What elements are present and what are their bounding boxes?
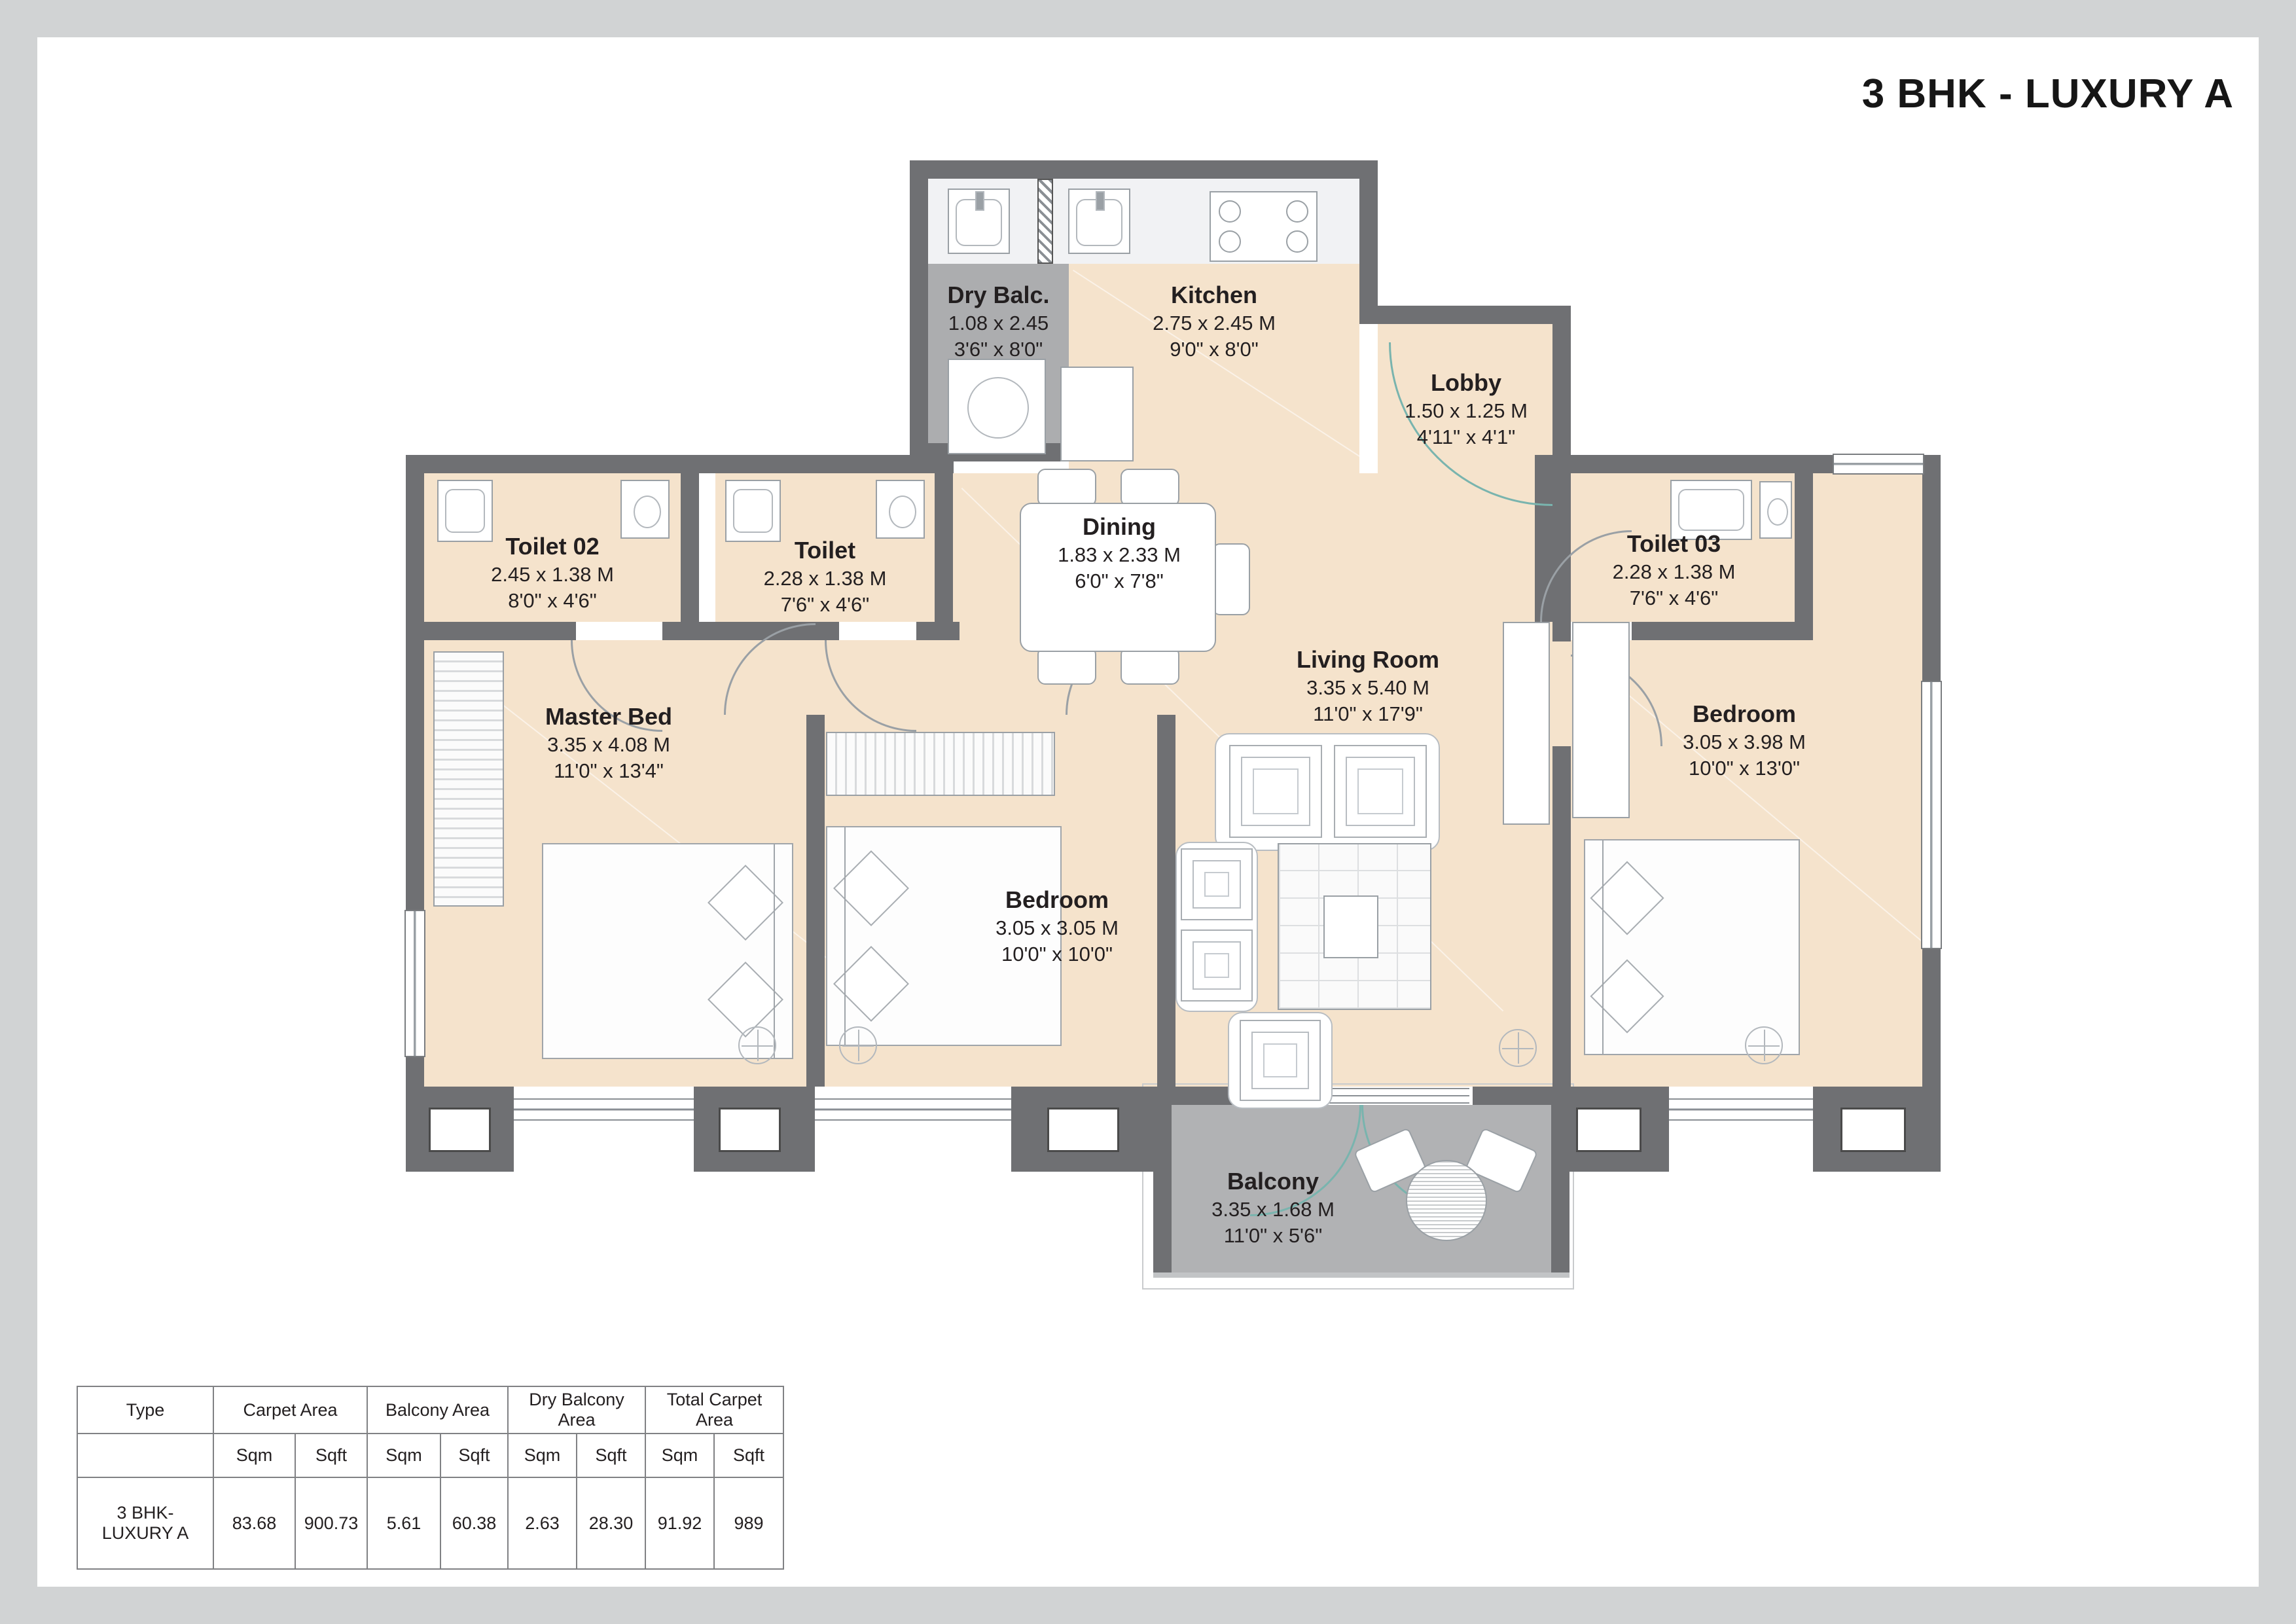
wall <box>806 715 825 1087</box>
dining-chair <box>1037 647 1096 685</box>
unit-header: Sqft <box>295 1434 367 1477</box>
window-box <box>429 1108 491 1152</box>
window <box>1833 454 1924 475</box>
wall <box>910 160 1378 179</box>
dining-chair <box>1037 469 1096 507</box>
room-label-dry-balcony: Dry Balc. 1.08 x 2.45 3'6" x 8'0" <box>922 280 1075 362</box>
room-label-lobby: Lobby 1.50 x 1.25 M 4'11" x 4'1" <box>1368 368 1564 450</box>
dining-chair <box>1121 469 1179 507</box>
window-box <box>1840 1108 1906 1152</box>
table-row: 3 BHK-LUXURY A 83.68 900.73 5.61 60.38 2… <box>77 1477 783 1569</box>
room-label-toilet02: Toilet 02 2.45 x 1.38 M 8'0" x 4'6" <box>424 532 681 613</box>
cell-balcony-sqm: 5.61 <box>367 1477 440 1569</box>
sofa-cushion <box>1229 745 1322 838</box>
cell-balcony-sqft: 60.38 <box>440 1477 508 1569</box>
wall <box>935 473 953 622</box>
frame-bottom <box>0 1587 2296 1624</box>
wall <box>916 622 960 640</box>
unit-header: Sqm <box>213 1434 295 1477</box>
frame-top <box>0 0 2296 37</box>
cell-total-sqft: 989 <box>714 1477 783 1569</box>
window-box <box>1047 1108 1119 1152</box>
plan-title: 3 BHK - LUXURY A <box>1862 71 2234 117</box>
unit-header: Sqft <box>577 1434 645 1477</box>
wc-icon <box>876 480 925 539</box>
sofa-cushion <box>1334 745 1427 838</box>
cell-carpet-sqm: 83.68 <box>213 1477 295 1569</box>
window-glazing <box>815 1098 1011 1121</box>
col-header-total-carpet-area: Total Carpet Area <box>645 1386 783 1434</box>
dining-chair <box>1121 647 1179 685</box>
cell-total-sqm: 91.92 <box>645 1477 714 1569</box>
wall <box>424 622 576 640</box>
wall <box>1632 622 1795 640</box>
dining-chair <box>1212 543 1250 615</box>
washbasin-icon <box>725 480 781 542</box>
bedroom3-passage-floor <box>1813 473 1922 640</box>
room-label-bedroom-mid: Bedroom 3.05 x 3.05 M 10'0" x 10'0" <box>920 885 1194 967</box>
wall <box>1551 1087 1570 1276</box>
col-header-type: Type <box>77 1386 213 1434</box>
wall <box>1473 1087 1551 1105</box>
room-label-kitchen: Kitchen 2.75 x 2.45 M 9'0" x 8'0" <box>1069 280 1359 362</box>
col-header-carpet-area: Carpet Area <box>213 1386 367 1434</box>
sink-icon <box>948 189 1010 254</box>
window-glazing <box>1669 1098 1813 1121</box>
room-label-living-room: Living Room 3.35 x 5.40 M 11'0" x 17'9" <box>1185 645 1551 727</box>
unit-header: Sqm <box>367 1434 440 1477</box>
wall <box>697 455 954 473</box>
wall <box>1795 473 1813 640</box>
floor-plan-page: { "title": "3 BHK - LUXURY A", "rooms": … <box>0 0 2296 1624</box>
wc-icon <box>620 480 670 539</box>
area-table: Type Carpet Area Balcony Area Dry Balcon… <box>77 1386 784 1570</box>
window <box>404 910 425 1057</box>
stove-icon <box>1210 191 1318 262</box>
fan-icon <box>1499 1029 1537 1067</box>
wall <box>1153 1087 1172 1276</box>
unit-header: Sqm <box>645 1434 714 1477</box>
duct-shaft <box>1037 179 1053 264</box>
room-label-balcony: Balcony 3.35 x 1.68 M 11'0" x 5'6" <box>1175 1166 1371 1248</box>
fan-icon <box>738 1026 776 1064</box>
unit-header: Sqm <box>508 1434 577 1477</box>
cell-drybalcony-sqm: 2.63 <box>508 1477 577 1569</box>
sofa-cushion <box>1240 1020 1321 1101</box>
room-label-toilet03: Toilet 03 2.28 x 1.38 M 7'6" x 4'6" <box>1553 529 1795 611</box>
room-label-master-bed: Master Bed 3.35 x 4.08 M 11'0" x 13'4" <box>425 702 792 784</box>
col-header-dry-balcony-area: Dry Balcony Area <box>508 1386 645 1434</box>
washing-machine-icon <box>948 359 1046 454</box>
kitchen-unit <box>1060 367 1134 461</box>
cell-type: 3 BHK-LUXURY A <box>77 1477 213 1569</box>
sink-icon <box>1068 189 1130 254</box>
window-box <box>1576 1108 1641 1152</box>
window-box <box>719 1108 781 1152</box>
wall <box>1359 160 1378 324</box>
coffee-table-icon <box>1323 895 1378 958</box>
wall <box>1552 746 1571 1087</box>
fan-icon <box>1745 1026 1783 1064</box>
frame-left <box>0 0 37 1624</box>
window <box>1921 681 1942 949</box>
wall <box>681 473 699 622</box>
bed-icon <box>1584 839 1800 1055</box>
unit-header: Sqft <box>440 1434 508 1477</box>
frame-right <box>2259 0 2296 1624</box>
room-label-dining: Dining 1.83 x 2.33 M 6'0" x 7'8" <box>1021 512 1217 594</box>
unit-header: Sqft <box>714 1434 783 1477</box>
balcony-railing <box>1153 1272 1570 1278</box>
balcony-table-icon <box>1406 1160 1487 1241</box>
room-label-toilet: Toilet 2.28 x 1.38 M 7'6" x 4'6" <box>715 535 935 617</box>
cell-drybalcony-sqft: 28.30 <box>577 1477 645 1569</box>
fan-icon <box>839 1026 877 1064</box>
cell-carpet-sqft: 900.73 <box>295 1477 367 1569</box>
wall <box>1359 306 1571 324</box>
wardrobe-icon <box>826 732 1055 796</box>
room-label-bedroom-right: Bedroom 3.05 x 3.98 M 10'0" x 13'0" <box>1571 699 1918 781</box>
col-header-empty <box>77 1434 213 1477</box>
col-header-balcony-area: Balcony Area <box>367 1386 508 1434</box>
window-glazing <box>514 1098 694 1121</box>
wall <box>406 455 697 473</box>
